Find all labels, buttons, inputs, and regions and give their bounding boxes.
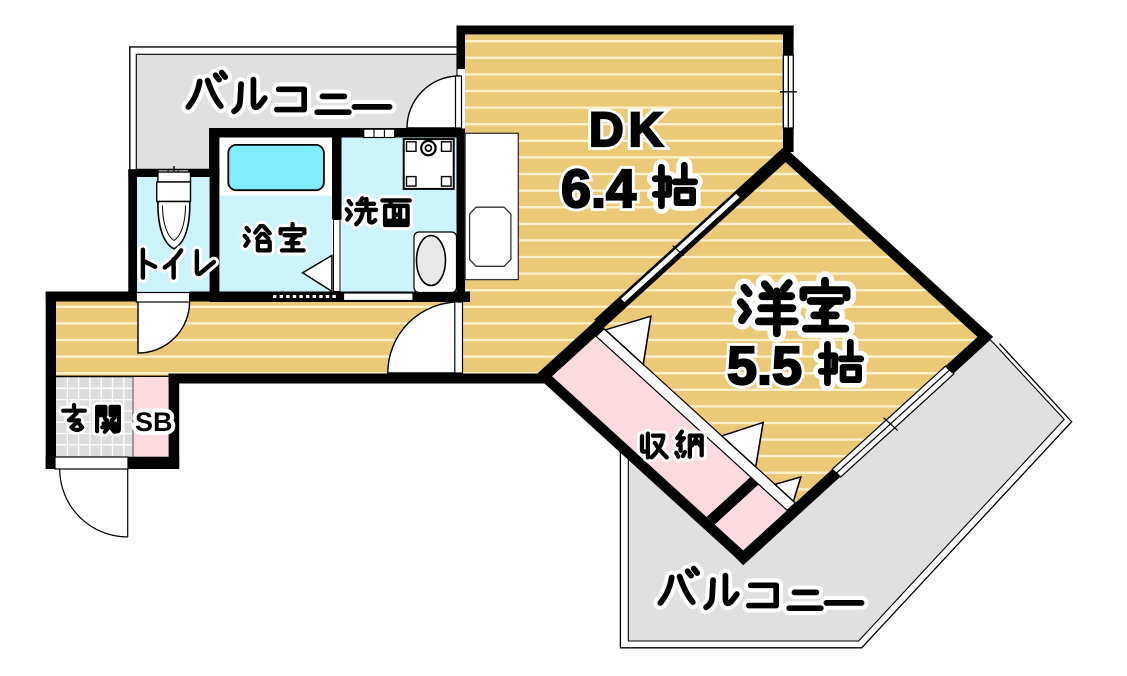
svg-text:DK: DK	[589, 104, 668, 157]
svg-text:6.4: 6.4	[561, 159, 636, 219]
svg-text:5.5: 5.5	[727, 336, 802, 396]
svg-text:SB: SB	[135, 407, 173, 437]
